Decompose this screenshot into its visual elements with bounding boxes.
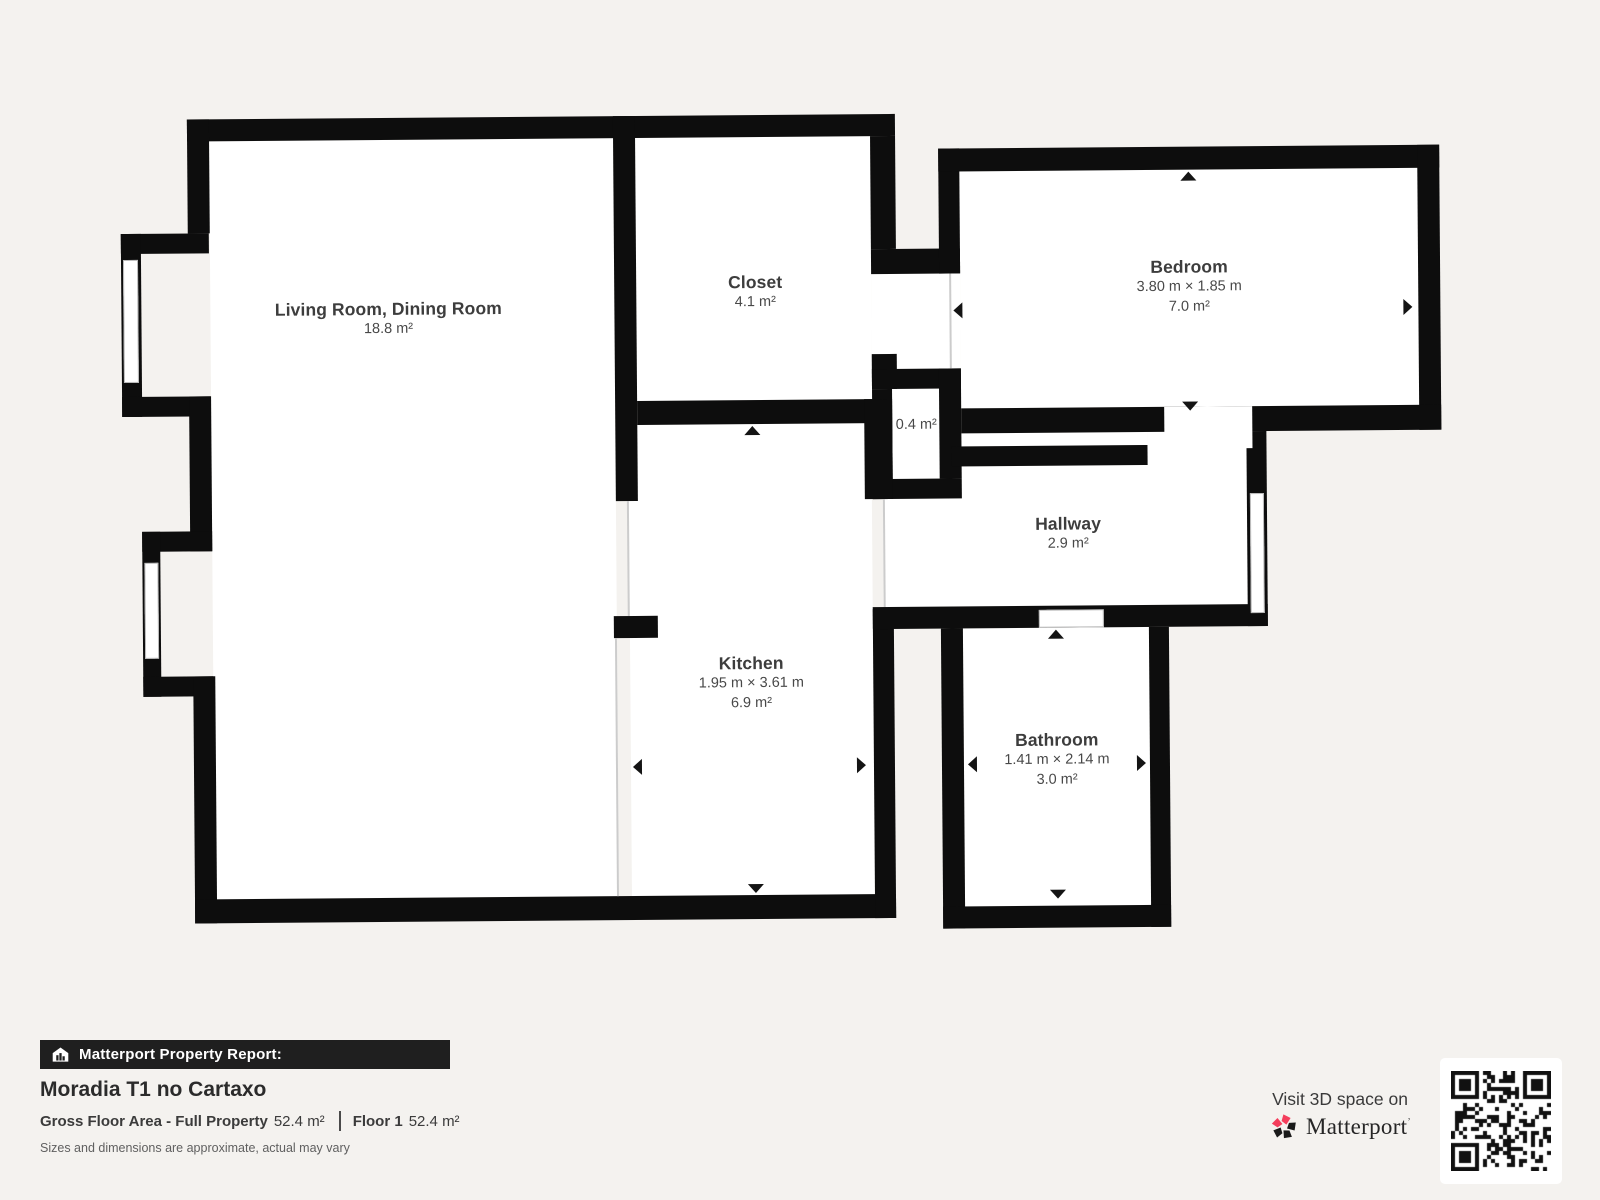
property-title: Moradia T1 no Cartaxo: [40, 1078, 266, 1102]
divider: [339, 1111, 341, 1131]
wall: [864, 399, 893, 499]
door-opening-bedroom: [1164, 406, 1252, 449]
report-header-bar: Matterport Property Report:: [40, 1040, 450, 1069]
wall: [938, 145, 1439, 172]
room-label-hallway: Hallway 2.9 m²: [918, 512, 1218, 555]
measure-arrow-down: [1182, 402, 1198, 411]
measure-arrow-up: [744, 426, 760, 435]
floor-label: Floor 1: [353, 1113, 403, 1130]
measure-arrow-up: [1048, 630, 1064, 639]
wall: [195, 894, 896, 924]
qr-code: [1451, 1071, 1551, 1171]
measure-arrow-up: [1180, 172, 1196, 181]
matterport-logo: Matterport’: [1240, 1112, 1440, 1142]
room-living: [209, 138, 619, 899]
wall: [1417, 145, 1441, 430]
measure-arrow-left: [633, 759, 642, 775]
wall-stub: [614, 616, 658, 638]
room-label-small-closet: 0.4 m²: [766, 415, 1066, 437]
area-stats: Gross Floor Area - Full Property 52.4 m²…: [40, 1111, 462, 1131]
floor-plan: Living Room, Dining Room 18.8 m² Closet …: [0, 0, 1600, 1200]
room-label-bedroom: Bedroom 3.80 m × 1.85 m 7.0 m²: [1039, 255, 1339, 317]
wall: [187, 119, 210, 233]
room-label-kitchen: Kitchen 1.95 m × 3.61 m 6.9 m²: [601, 652, 901, 714]
matterport-wordmark: Matterport’: [1306, 1114, 1411, 1140]
wall: [193, 676, 217, 923]
window: [123, 260, 139, 383]
room-label-bathroom: Bathroom 1.41 m × 2.14 m 3.0 m²: [907, 728, 1207, 790]
visit-3d-space-text: Visit 3D space on: [1240, 1089, 1440, 1110]
wall: [951, 445, 1147, 467]
property-report-page: Living Room, Dining Room 18.8 m² Closet …: [0, 0, 1600, 1200]
wall: [189, 396, 212, 551]
matterport-pinwheel-icon: [1269, 1112, 1299, 1142]
measure-arrow-down: [1050, 890, 1066, 899]
room-label-closet: Closet 4.1 m²: [605, 271, 905, 314]
room-label-living-room: Living Room, Dining Room 18.8 m²: [238, 298, 538, 341]
door-opening-bathroom: [1039, 609, 1104, 628]
wall: [943, 905, 1171, 929]
window: [1250, 493, 1265, 613]
report-bar-label: Matterport Property Report:: [79, 1046, 282, 1063]
room-closet: [635, 136, 872, 401]
measure-arrow-left: [953, 302, 962, 318]
window: [144, 563, 159, 659]
gross-floor-area-label: Gross Floor Area - Full Property: [40, 1113, 268, 1130]
disclaimer-text: Sizes and dimensions are approximate, ac…: [40, 1141, 350, 1155]
house-chart-icon: [52, 1046, 69, 1063]
floor-value: 52.4 m²: [409, 1113, 460, 1130]
measure-arrow-right: [1403, 299, 1412, 315]
measure-arrow-down: [748, 884, 764, 893]
wall: [870, 136, 896, 249]
measure-arrow-right: [857, 757, 866, 773]
gross-floor-area-value: 52.4 m²: [274, 1113, 325, 1130]
